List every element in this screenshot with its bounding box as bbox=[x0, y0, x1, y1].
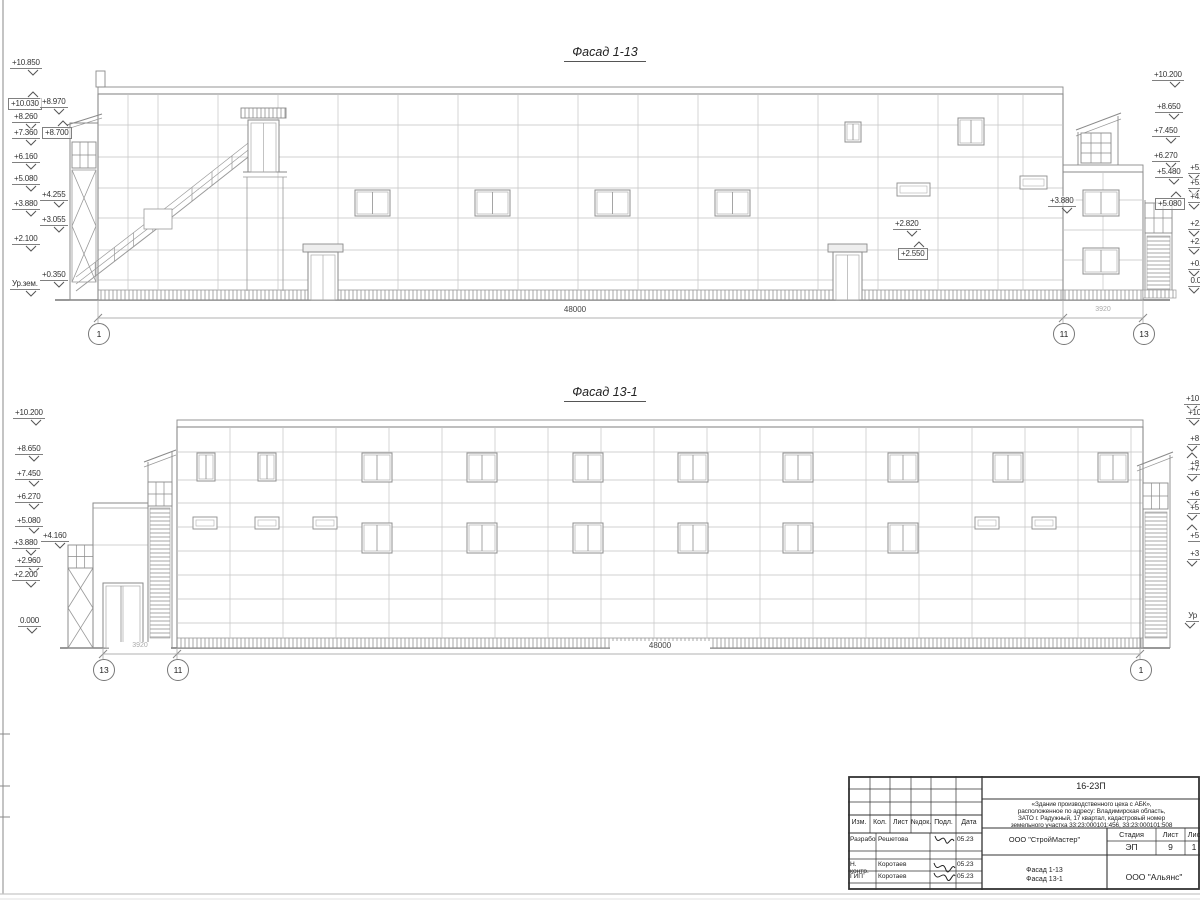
facade1-dim-48000: 48000 bbox=[525, 305, 625, 314]
elevation-mark: +2.100 bbox=[12, 234, 40, 252]
person-name: Решетова bbox=[878, 836, 929, 843]
elevation-mark: +10.850 bbox=[10, 58, 42, 76]
sheet-number: 9 bbox=[1156, 842, 1185, 852]
column-header: №док. bbox=[911, 819, 931, 826]
column-header: Изм. bbox=[848, 819, 870, 826]
sheets-header: Лис bbox=[1185, 830, 1200, 839]
axis-bubble: 11 bbox=[167, 659, 189, 681]
elevation-mark: +7.450 bbox=[1152, 126, 1180, 144]
elevation-mark: 0.000 bbox=[18, 616, 41, 634]
facade1-dim-3920: 3920 bbox=[1072, 306, 1134, 313]
sign-date: 05.23 bbox=[957, 861, 981, 868]
elevation-mark: +3 bbox=[1186, 549, 1200, 567]
project-description-line: расположенное по адресу: Владимирская об… bbox=[985, 808, 1198, 815]
drawing-sheet: Фасад 1-13 Фасад 13-1 48000 3920 3920 48… bbox=[0, 0, 1200, 900]
signature bbox=[934, 873, 955, 881]
column-header: Лист bbox=[890, 819, 911, 826]
person-name: Коротаев bbox=[878, 861, 929, 868]
elevation-mark: +5.080 bbox=[1155, 191, 1185, 210]
elevation-mark: +7 bbox=[1186, 464, 1200, 482]
elevation-mark: +8.650 bbox=[1155, 102, 1183, 120]
facade2-dim-48000: 48000 bbox=[610, 641, 710, 650]
elevation-mark: +8.970 bbox=[40, 97, 68, 115]
axis-bubble: 11 bbox=[1053, 323, 1075, 345]
elevation-mark: +8.700 bbox=[42, 120, 72, 139]
sheet-name-2: Фасад 13-1 bbox=[984, 876, 1105, 885]
signature bbox=[934, 863, 955, 872]
elevation-mark: +10.200 bbox=[13, 408, 45, 426]
elevation-mark: +5.480 bbox=[1155, 167, 1183, 185]
facade1-title: Фасад 1-13 bbox=[540, 45, 670, 59]
elevation-mark: +10 bbox=[1186, 408, 1200, 426]
facade2-dim-3920: 3920 bbox=[109, 642, 171, 649]
title-block: 16-23П «Здание производственного цеха с … bbox=[848, 776, 1200, 890]
axis-bubble: 13 bbox=[1133, 323, 1155, 345]
project-description-line: земельного участка 33:23:000101:456, 33:… bbox=[985, 822, 1198, 829]
elevation-mark: +6.160 bbox=[12, 152, 40, 170]
facade-linework bbox=[0, 0, 1200, 900]
axis-bubble: 1 bbox=[88, 323, 110, 345]
elevation-mark: +7.360 bbox=[12, 128, 40, 146]
elevation-mark: +0.350 bbox=[40, 270, 68, 288]
sheet-name-1: Фасад 1-13 bbox=[984, 867, 1105, 876]
elevation-mark: +8 bbox=[1186, 434, 1200, 452]
elevation-mark: +5.080 bbox=[15, 516, 43, 534]
elevation-mark: +2.820 bbox=[893, 219, 921, 237]
stage-value: ЭП bbox=[1107, 842, 1156, 852]
client-org: ООО "Альянс" bbox=[1108, 872, 1200, 882]
elevation-mark: +5 bbox=[1186, 524, 1200, 542]
elevation-mark: +4.160 bbox=[41, 531, 69, 549]
person-role: Разработал bbox=[850, 836, 876, 843]
elevation-mark: +2. bbox=[1188, 237, 1200, 255]
elevation-mark: +3.880 bbox=[1048, 196, 1076, 214]
elevation-mark: +2.550 bbox=[898, 241, 928, 260]
elevation-mark: +7.450 bbox=[15, 469, 43, 487]
elevation-mark: +10.030 bbox=[8, 91, 42, 110]
elevation-mark: +4.255 bbox=[40, 190, 68, 208]
sign-date: 05.23 bbox=[957, 836, 981, 843]
axis-bubble: 1 bbox=[1130, 659, 1152, 681]
elevation-mark: +3.880 bbox=[12, 538, 40, 556]
elevation-mark: +3.055 bbox=[40, 215, 68, 233]
person-name: Коротаев bbox=[878, 873, 929, 880]
axis-bubble: 13 bbox=[93, 659, 115, 681]
elevation-mark: +10.200 bbox=[1152, 70, 1184, 88]
elevation-mark: Ур.зем. bbox=[10, 279, 40, 297]
elevation-mark: +8.650 bbox=[15, 444, 43, 462]
elevation-mark: +6.270 bbox=[15, 492, 43, 510]
column-header: Подл. bbox=[931, 819, 956, 826]
person-role: ГИП bbox=[850, 873, 876, 880]
elevation-mark: +3.880 bbox=[12, 199, 40, 217]
sheets-total: 1 bbox=[1185, 842, 1200, 852]
sign-date: 05.23 bbox=[957, 873, 981, 880]
facade2-title: Фасад 13-1 bbox=[540, 385, 670, 399]
elevation-mark: +5 bbox=[1186, 503, 1200, 521]
project-description-line: ЗАТО г. Радужный, 17 квартал, кадастровы… bbox=[985, 815, 1198, 822]
column-header: Дата bbox=[956, 819, 982, 826]
signature bbox=[935, 836, 954, 843]
stage-header: Стадия bbox=[1107, 830, 1156, 839]
project-code: 16-23П bbox=[982, 781, 1200, 791]
elevation-mark: Ур bbox=[1184, 611, 1199, 629]
elevation-mark: +2.200 bbox=[12, 570, 40, 588]
elevation-mark: 0.0 bbox=[1188, 276, 1200, 294]
column-header: Кол. bbox=[870, 819, 890, 826]
elevation-mark: +2. bbox=[1188, 219, 1200, 237]
project-description-line: «Здание производственного цеха с АБК», bbox=[985, 801, 1198, 808]
elevation-mark: +5.080 bbox=[12, 174, 40, 192]
elevation-mark: +0. bbox=[1188, 259, 1200, 277]
sheet-header: Лист bbox=[1156, 830, 1185, 839]
elevation-mark: +4. bbox=[1188, 192, 1200, 210]
contractor-org: ООО "СтройМастер" bbox=[984, 835, 1105, 844]
